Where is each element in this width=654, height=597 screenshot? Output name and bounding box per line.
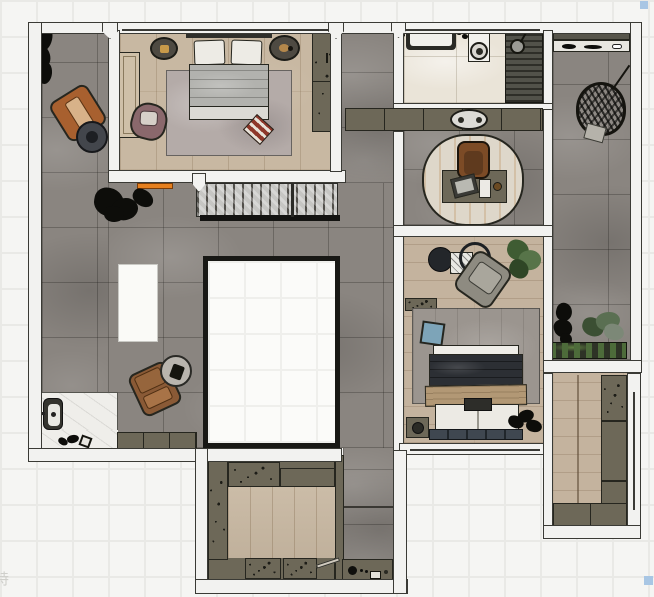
wall-corridor-right	[393, 450, 407, 594]
wall-office-bottom	[393, 225, 553, 237]
round-side-table-bottom[interactable]	[160, 355, 192, 387]
round-side-table-top[interactable]	[76, 121, 108, 153]
storage-bottom-cabinet-a[interactable]	[245, 558, 281, 579]
floor-void-opening[interactable]	[203, 256, 340, 448]
second-nightstand[interactable]	[406, 417, 429, 438]
nightstand-right[interactable]	[269, 35, 300, 61]
desk-bowl[interactable]	[493, 182, 502, 191]
closet-cabinet-mid[interactable]	[601, 421, 627, 481]
storage-bottom-cabinet-b[interactable]	[283, 558, 317, 579]
wall-column-left-upper	[393, 30, 404, 105]
shrub-plant[interactable]	[92, 180, 158, 228]
wall-storage-left	[195, 448, 208, 594]
pillow-left	[194, 39, 226, 65]
corridor-seam	[343, 506, 393, 508]
window-master-top	[122, 29, 328, 31]
closet-cabinet-top[interactable]	[601, 375, 627, 421]
storage-wood-floor	[228, 487, 335, 558]
wall-balcony-bottom	[543, 360, 642, 373]
coffee-counter[interactable]	[342, 559, 393, 580]
outdoor-basin[interactable]	[43, 398, 63, 430]
window-bathroom-top	[406, 29, 540, 31]
small-box	[370, 571, 381, 579]
wall-column-left-lower	[393, 236, 404, 452]
garden-bench[interactable]	[117, 432, 197, 449]
toilet[interactable]	[470, 42, 488, 60]
hanging-egg-chair[interactable]	[576, 82, 626, 136]
second-dark-plant[interactable]	[506, 406, 544, 440]
staircase[interactable]	[196, 183, 338, 217]
shower-head[interactable]	[510, 39, 525, 54]
oval-sink[interactable]	[450, 109, 488, 130]
selection-handle-bottom-right[interactable]	[644, 576, 653, 585]
wall-closet-bottom	[543, 525, 641, 539]
selection-handle-top-right[interactable]	[640, 1, 648, 9]
wall-storage-bottom	[195, 579, 408, 594]
master-double-bed[interactable]	[186, 34, 272, 120]
wall-right-outer	[630, 22, 642, 372]
closet-cabinet-bottom-row[interactable]	[553, 503, 627, 527]
balcony-shelf-lower	[553, 40, 630, 52]
storage-upper-cabinet-b[interactable]	[280, 468, 335, 487]
wall-column-left-mid	[393, 131, 404, 227]
floor-plan-canvas[interactable]: 特	[0, 0, 654, 597]
nightstand-left[interactable]	[150, 37, 178, 60]
closet-plank-seam	[577, 375, 579, 503]
navy-duvet	[429, 354, 523, 387]
pillow-board	[464, 398, 492, 411]
wall-master-left	[108, 30, 120, 176]
wall-left	[28, 22, 42, 462]
master-duvet	[189, 64, 269, 108]
staircase-edge	[200, 215, 340, 221]
watermark-text: 特	[0, 568, 9, 589]
window-closet-right	[633, 392, 635, 510]
staircase-landing-divider	[291, 183, 294, 217]
storage-cabinet-left[interactable]	[208, 460, 228, 560]
teak-shower-deck[interactable]	[505, 27, 543, 103]
balcony-dark-plant[interactable]	[552, 301, 580, 347]
storage-upper-cabinet-a[interactable]	[228, 462, 280, 487]
tablet[interactable]	[479, 179, 491, 198]
wall-bottom-left	[28, 448, 342, 462]
window-suite-bottom	[410, 449, 540, 451]
pillow-right	[231, 39, 263, 65]
wall-master-right	[330, 30, 342, 172]
closet-cabinet-low[interactable]	[601, 481, 627, 505]
planter-box[interactable]	[549, 342, 627, 359]
kettle	[348, 566, 357, 575]
blue-cushion[interactable]	[420, 321, 446, 347]
sink-cabinet-row[interactable]	[345, 108, 543, 131]
wall-closet-left	[543, 373, 553, 538]
island-skylight[interactable]	[118, 264, 158, 342]
potted-plant-green[interactable]	[503, 236, 545, 286]
balcony-green-plant[interactable]	[580, 308, 626, 346]
wall-master-bottom	[108, 170, 346, 183]
